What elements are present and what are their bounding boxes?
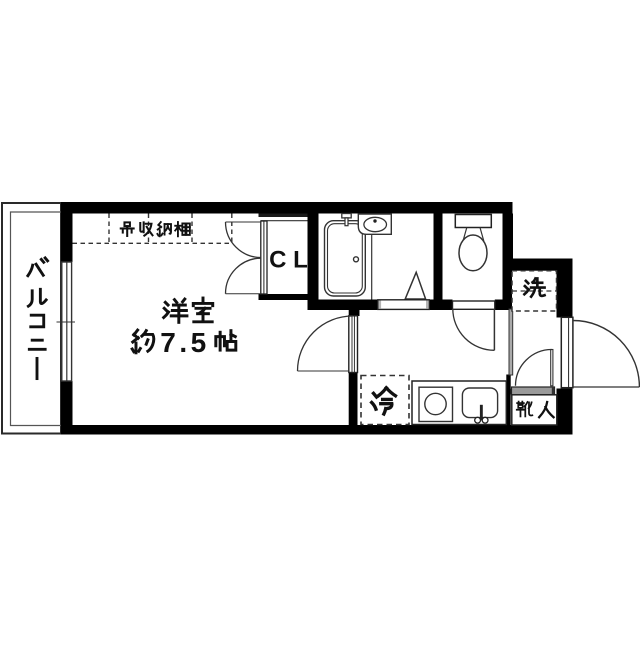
svg-text:7.5: 7.5	[160, 327, 209, 358]
svg-text:C L: C L	[269, 247, 308, 274]
